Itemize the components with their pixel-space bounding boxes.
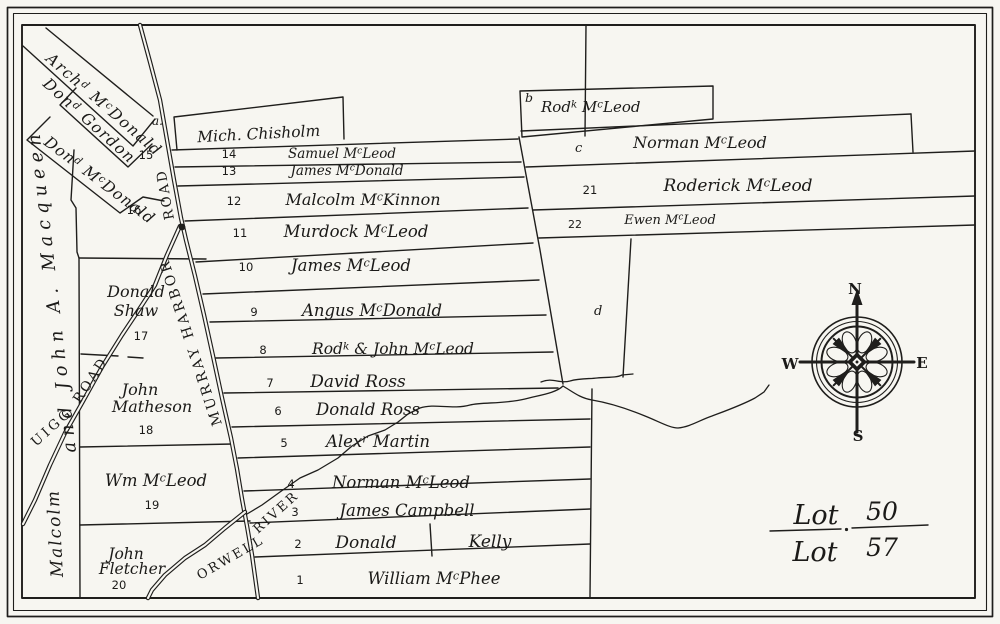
compass-e-label: E — [916, 354, 927, 372]
strip-6-name: Donald Ross — [315, 400, 420, 419]
marker-a: a. — [152, 114, 163, 128]
parcel-17-number: 17 — [134, 329, 149, 343]
strip-11-number: 11 — [233, 226, 248, 240]
parcel-15-number: 15 — [139, 148, 154, 162]
strip-9-number: 9 — [250, 305, 257, 319]
parcel-c-letter: c — [575, 141, 583, 156]
road-junction-dot — [179, 224, 186, 231]
strip-7-name: David Ross — [309, 372, 406, 392]
strip-4-name: Norman McLeod — [331, 473, 470, 492]
lot-num-top: 50 — [866, 497, 898, 526]
parcel-20-name-line2: Fletcher — [98, 560, 167, 578]
strip-4-number: 4 — [287, 477, 294, 491]
strip-5-name: Alexr Martin — [324, 432, 430, 451]
parcel-b-name: Rodk McLeod — [540, 98, 640, 116]
parcel-22-number: 22 — [568, 218, 582, 231]
strip-2-name: Donald — [334, 533, 396, 553]
parcel-22-name: Ewen McLeod — [623, 213, 716, 229]
strip-14-number: 14 — [222, 147, 237, 161]
strip-12-number: 12 — [227, 194, 242, 208]
strip-13-number: 13 — [222, 164, 237, 178]
parcel-21-name: Roderick McLeod — [662, 176, 812, 197]
parcel-18-name-line2: Matheson — [111, 397, 192, 416]
strip-8-name: Rodk & John McLeod — [311, 340, 474, 358]
strip-13-name: James McDonald — [287, 163, 403, 180]
strip-5-number: 5 — [280, 436, 287, 450]
scanned-lot-map-page: N S W E Lot 50 Lot 57 ROAD MURRAY HARBOR… — [0, 0, 1000, 624]
parcel-17-name-line2: Shaw — [114, 301, 159, 320]
parcel-20-number: 20 — [112, 578, 127, 592]
strip-2-number: 2 — [294, 537, 301, 551]
lot-num-bottom: 57 — [866, 533, 898, 562]
parcel-18-number: 18 — [139, 423, 154, 437]
parcel-17-name-line1: Donald — [106, 282, 165, 301]
parcel-19-name: Wm McLeod — [105, 471, 207, 490]
strip-2-name2: Kelly — [468, 532, 512, 552]
strip-14-name: Samuel McLeod — [288, 146, 396, 163]
strip-3-number: 3 — [291, 505, 298, 519]
parcel-19-number: 19 — [145, 498, 160, 512]
parcel-16-number: 16 — [127, 203, 142, 217]
strip-1-name: William McPhee — [368, 569, 501, 588]
strip-9-name: Angus McDonald — [300, 301, 442, 320]
strip-8-number: 8 — [259, 343, 266, 357]
lot-word-top: Lot — [792, 500, 838, 531]
compass-w-label: W — [781, 355, 800, 373]
compass-n-label: N — [848, 280, 862, 298]
strip-1-number: 1 — [296, 573, 303, 587]
strip-6-number: 6 — [274, 404, 281, 418]
historical-lot-map: N S W E Lot 50 Lot 57 ROAD MURRAY HARBOR… — [0, 0, 1000, 624]
parcel-b-letter: b — [525, 90, 533, 105]
compass-s-label: S — [853, 427, 864, 445]
parcel-21-number: 21 — [583, 183, 598, 197]
strip-3-name: James Campbell — [336, 501, 474, 520]
lot-word-bottom: Lot — [791, 537, 837, 568]
strip-10-name: James McLeod — [288, 256, 411, 275]
strip-7-number: 7 — [266, 376, 273, 390]
strip-11-name: Murdock McLeod — [283, 222, 429, 241]
parcel-c-name: Norman McLeod — [632, 133, 767, 152]
strip-10-number: 10 — [239, 260, 254, 274]
marker-d: d — [594, 304, 602, 319]
strip-12-name: Malcolm McKinnon — [284, 190, 440, 209]
